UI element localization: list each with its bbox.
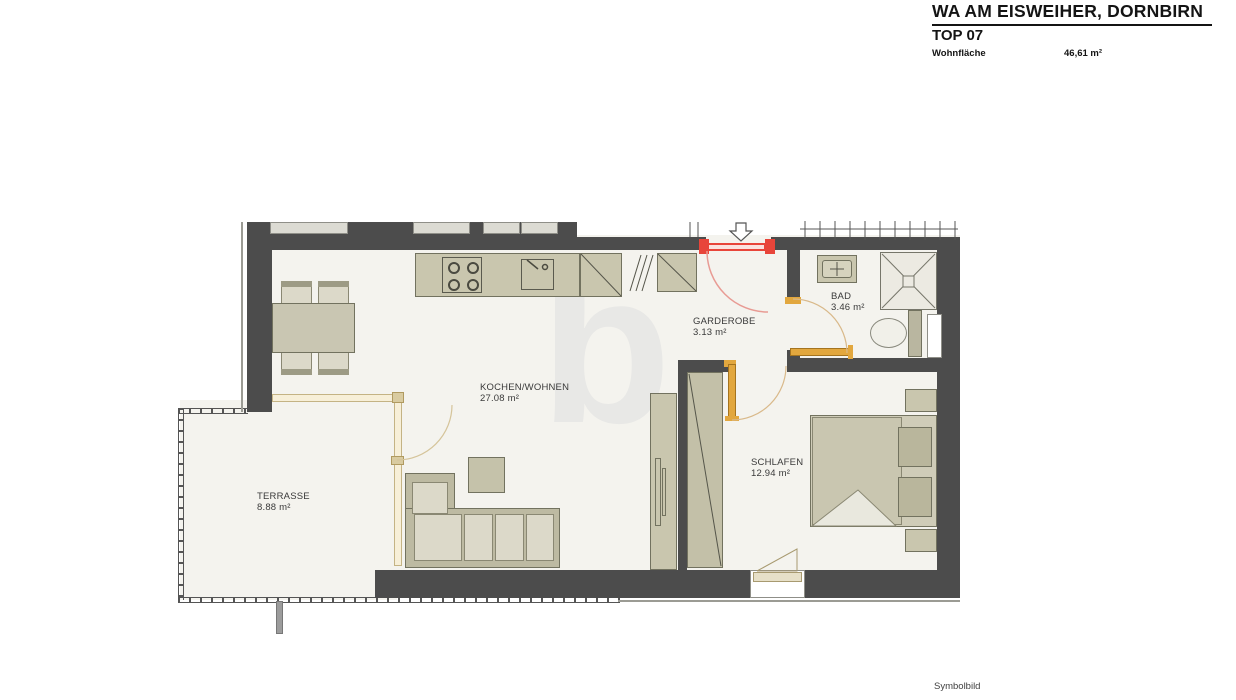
room-name: BAD: [831, 291, 865, 302]
wardrobe-diagonal: [689, 374, 721, 566]
room-label-terrasse: TERRASSE 8.88 m²: [257, 491, 310, 513]
faucet-cross-icon: [830, 262, 844, 276]
sink-tap-icon: [527, 260, 548, 270]
cabinet-diagonal: [581, 254, 621, 296]
room-name: TERRASSE: [257, 491, 310, 502]
floorplan-page: WA AM EISWEIHER, DORNBIRN TOP 07 Wohnflä…: [0, 0, 1236, 700]
title-rule: [932, 24, 1212, 26]
terrace-door-swing-arc: [397, 405, 452, 460]
bedroom-door-swing-arc: [732, 366, 786, 420]
plan-annotations: [0, 0, 1236, 700]
tilt-window-symbol: [757, 549, 797, 571]
duvet-fold: [812, 490, 896, 526]
shaft-hatch-icon: [630, 255, 653, 291]
living-area-value: 46,61 m²: [1064, 48, 1102, 59]
entrance-door-swing-arc: [707, 251, 768, 312]
room-label-bad: BAD 3.46 m²: [831, 291, 865, 313]
room-area: 3.46 m²: [831, 302, 865, 313]
room-name: KOCHEN/WOHNEN: [480, 382, 569, 393]
entrance-arrow-icon: [730, 223, 752, 241]
room-name: GARDEROBE: [693, 316, 756, 327]
room-label-garderobe: GARDEROBE 3.13 m²: [693, 316, 756, 338]
page-title: WA AM EISWEIHER, DORNBIRN: [932, 1, 1203, 22]
living-area-label: Wohnfläche: [932, 48, 986, 59]
room-area: 27.08 m²: [480, 393, 569, 404]
roof-hatch: [800, 221, 958, 240]
shower-cross-icon: [882, 254, 935, 308]
room-area: 8.88 m²: [257, 502, 310, 513]
room-area: 12.94 m²: [751, 468, 803, 479]
symbol-image-note: Symbolbild: [934, 681, 980, 692]
canopy-ticks: [690, 222, 698, 237]
room-label-schlafen: SCHLAFEN 12.94 m²: [751, 457, 803, 479]
cabinet-diagonal: [658, 254, 696, 291]
room-name: SCHLAFEN: [751, 457, 803, 468]
room-label-kochen-wohnen: KOCHEN/WOHNEN 27.08 m²: [480, 382, 569, 404]
room-area: 3.13 m²: [693, 327, 756, 338]
unit-title: TOP 07: [932, 27, 983, 44]
